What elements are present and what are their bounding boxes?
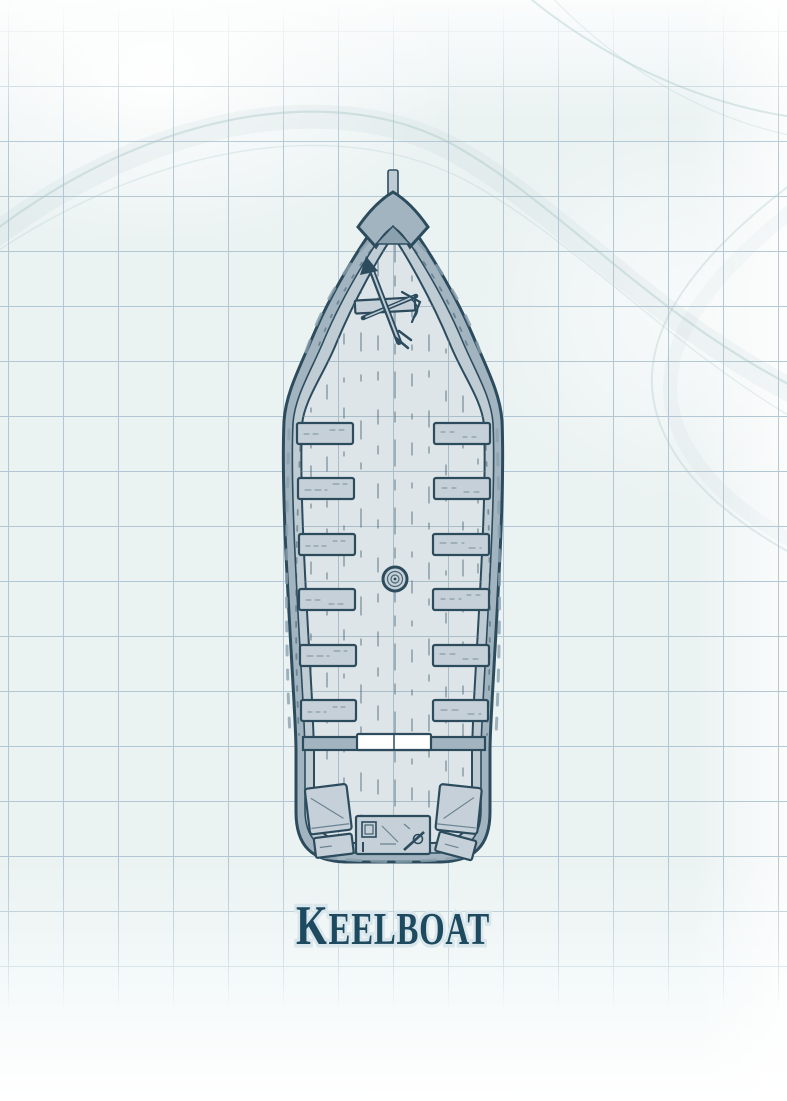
rope-coil: [383, 567, 407, 591]
rowing-bench: [301, 700, 356, 721]
blueprint-canvas: KEELBOAT: [0, 0, 787, 1101]
rowing-bench: [298, 478, 354, 499]
rowing-bench: [433, 700, 488, 721]
rowing-bench: [433, 534, 489, 555]
rowing-bench: [434, 478, 490, 499]
toolbox: [356, 816, 430, 854]
rowing-bench: [433, 645, 489, 666]
prow-cap: [358, 192, 428, 247]
stern-bulkhead: [303, 734, 485, 750]
rowing-bench: [297, 423, 353, 444]
rowing-bench: [299, 589, 355, 610]
map-title-block: KEELBOAT: [0, 880, 787, 970]
map-title: KEELBOAT: [296, 894, 490, 957]
rowing-bench: [299, 534, 355, 555]
rowing-bench: [433, 589, 489, 610]
rowing-bench: [300, 645, 356, 666]
rowing-bench: [434, 423, 490, 444]
stern-crate: [433, 784, 483, 861]
